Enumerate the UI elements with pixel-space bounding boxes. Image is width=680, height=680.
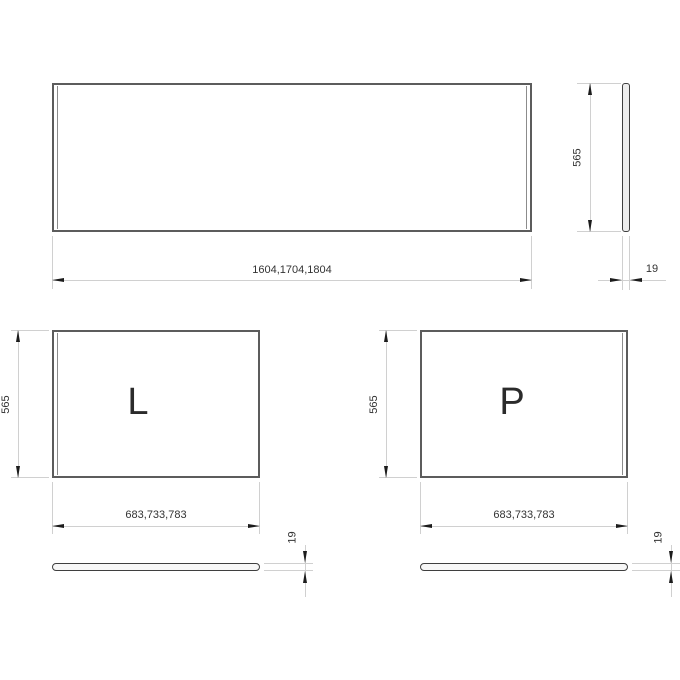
left-panel-letter: L xyxy=(116,379,160,425)
front-height-label: 565 xyxy=(572,140,585,176)
front-width-label: 1604,1704,1804 xyxy=(52,264,532,277)
arrowhead-right xyxy=(610,278,622,282)
front-panel-fold-line-left xyxy=(57,86,58,229)
extension-line xyxy=(577,83,621,84)
dimension-line xyxy=(590,83,591,232)
arrowhead-left xyxy=(420,524,432,528)
arrowhead-left xyxy=(52,278,64,282)
extension-line xyxy=(577,231,621,232)
arrowhead-down xyxy=(303,551,307,563)
extension-line xyxy=(632,563,680,564)
left-height-label: 565 xyxy=(0,387,13,422)
arrowhead-right xyxy=(248,524,260,528)
front-panel-edge-profile xyxy=(622,83,630,232)
right-panel-edge-profile xyxy=(420,563,628,571)
dimension-line xyxy=(386,330,387,478)
left-panel-fold-line xyxy=(57,333,58,475)
arrowhead-up xyxy=(303,571,307,583)
arrowhead-down xyxy=(384,466,388,478)
right-height-label: 565 xyxy=(368,387,381,422)
front-panel-outline xyxy=(52,83,532,232)
dimension-line xyxy=(52,280,532,281)
arrowhead-up xyxy=(669,571,673,583)
technical-drawing-canvas: 1604,1704,1804 565 19 L 565 xyxy=(0,0,680,680)
arrowhead-up xyxy=(16,330,20,342)
left-width-label: 683,733,783 xyxy=(52,509,260,522)
arrowhead-left xyxy=(630,278,642,282)
front-panel-fold-line-right xyxy=(526,86,527,229)
dimension-line xyxy=(18,330,19,478)
left-thickness-label: 19 xyxy=(287,524,300,552)
dimension-line xyxy=(52,526,260,527)
right-width-label: 683,733,783 xyxy=(420,509,628,522)
arrowhead-left xyxy=(52,524,64,528)
right-panel-fold-line xyxy=(622,333,623,475)
arrowhead-down xyxy=(16,466,20,478)
arrowhead-right xyxy=(616,524,628,528)
arrowhead-right xyxy=(520,278,532,282)
left-panel-edge-profile xyxy=(52,563,260,571)
arrowhead-up xyxy=(588,83,592,95)
right-panel-letter: P xyxy=(490,379,534,425)
front-thickness-label: 19 xyxy=(638,263,666,276)
arrowhead-down xyxy=(588,220,592,232)
dimension-line xyxy=(420,526,628,527)
arrowhead-down xyxy=(669,551,673,563)
arrowhead-up xyxy=(384,330,388,342)
extension-line xyxy=(622,236,623,290)
right-thickness-label: 19 xyxy=(653,524,666,552)
